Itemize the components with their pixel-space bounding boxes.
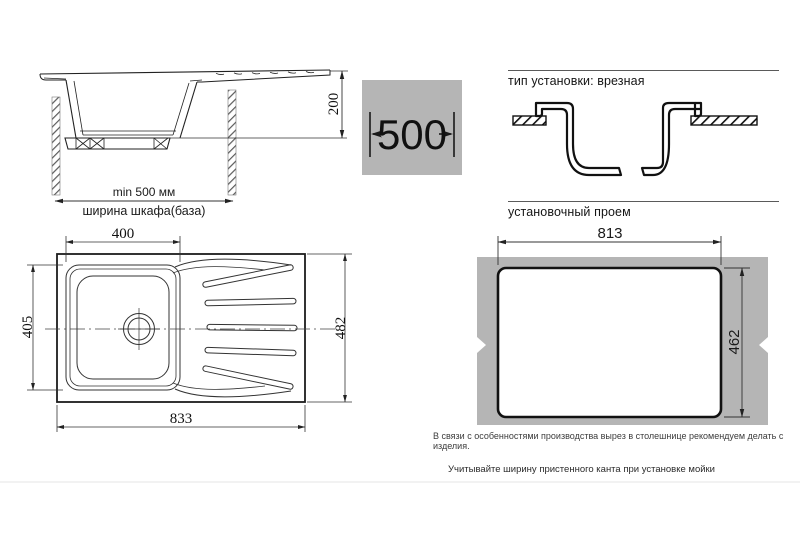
dim-200-label: 200	[326, 93, 342, 116]
page-divider	[0, 481, 800, 483]
dim-overall-depth: 482	[307, 254, 352, 402]
dim-833-label: 833	[170, 411, 193, 427]
side-view-drawing: 200 min 500 мм ширина шкафа(база)	[30, 55, 360, 225]
install-cross-section-drawing	[505, 92, 775, 187]
badge-value: 500	[377, 111, 447, 158]
install-type-title: тип установки: врезная	[508, 70, 779, 88]
top-view-drawing: 400 405 833 482	[15, 222, 360, 437]
dim-405-label: 405	[20, 316, 36, 339]
dim-overall-width: 833	[57, 405, 305, 432]
min-width-label: min 500 мм	[113, 185, 176, 199]
cutout-opening	[498, 268, 721, 417]
production-note: В связи с особенностями производства выр…	[433, 431, 798, 451]
dim-400-label: 400	[112, 226, 135, 242]
sink-side-profile	[40, 70, 330, 149]
dim-bowl-width: 400	[66, 226, 180, 262]
sink-installation-drawing: 200 min 500 мм ширина шкафа(база) 500 ти…	[0, 0, 800, 533]
cabinet-base-label: ширина шкафа(база)	[83, 204, 206, 218]
sink-edge-profiles	[536, 103, 701, 175]
drainboard-grooves	[173, 259, 297, 397]
bowl-top-view	[66, 265, 180, 390]
cutout-section-title: установочный проем	[508, 201, 779, 219]
dim-482-label: 482	[333, 317, 349, 340]
cabinet-width-badge: 500	[362, 80, 462, 175]
cutout-drawing: 813 462	[440, 225, 795, 435]
dim-813-label: 813	[597, 225, 622, 242]
dim-462-label: 462	[726, 329, 743, 354]
countertop-cut-bars	[513, 116, 757, 125]
dim-depth-200: 200	[326, 71, 348, 138]
dim-cabinet-width: min 500 мм ширина шкафа(база)	[55, 185, 233, 218]
footer-note: Учитывайте ширину пристенного канта при …	[448, 464, 788, 475]
cabinet-posts	[52, 90, 236, 195]
